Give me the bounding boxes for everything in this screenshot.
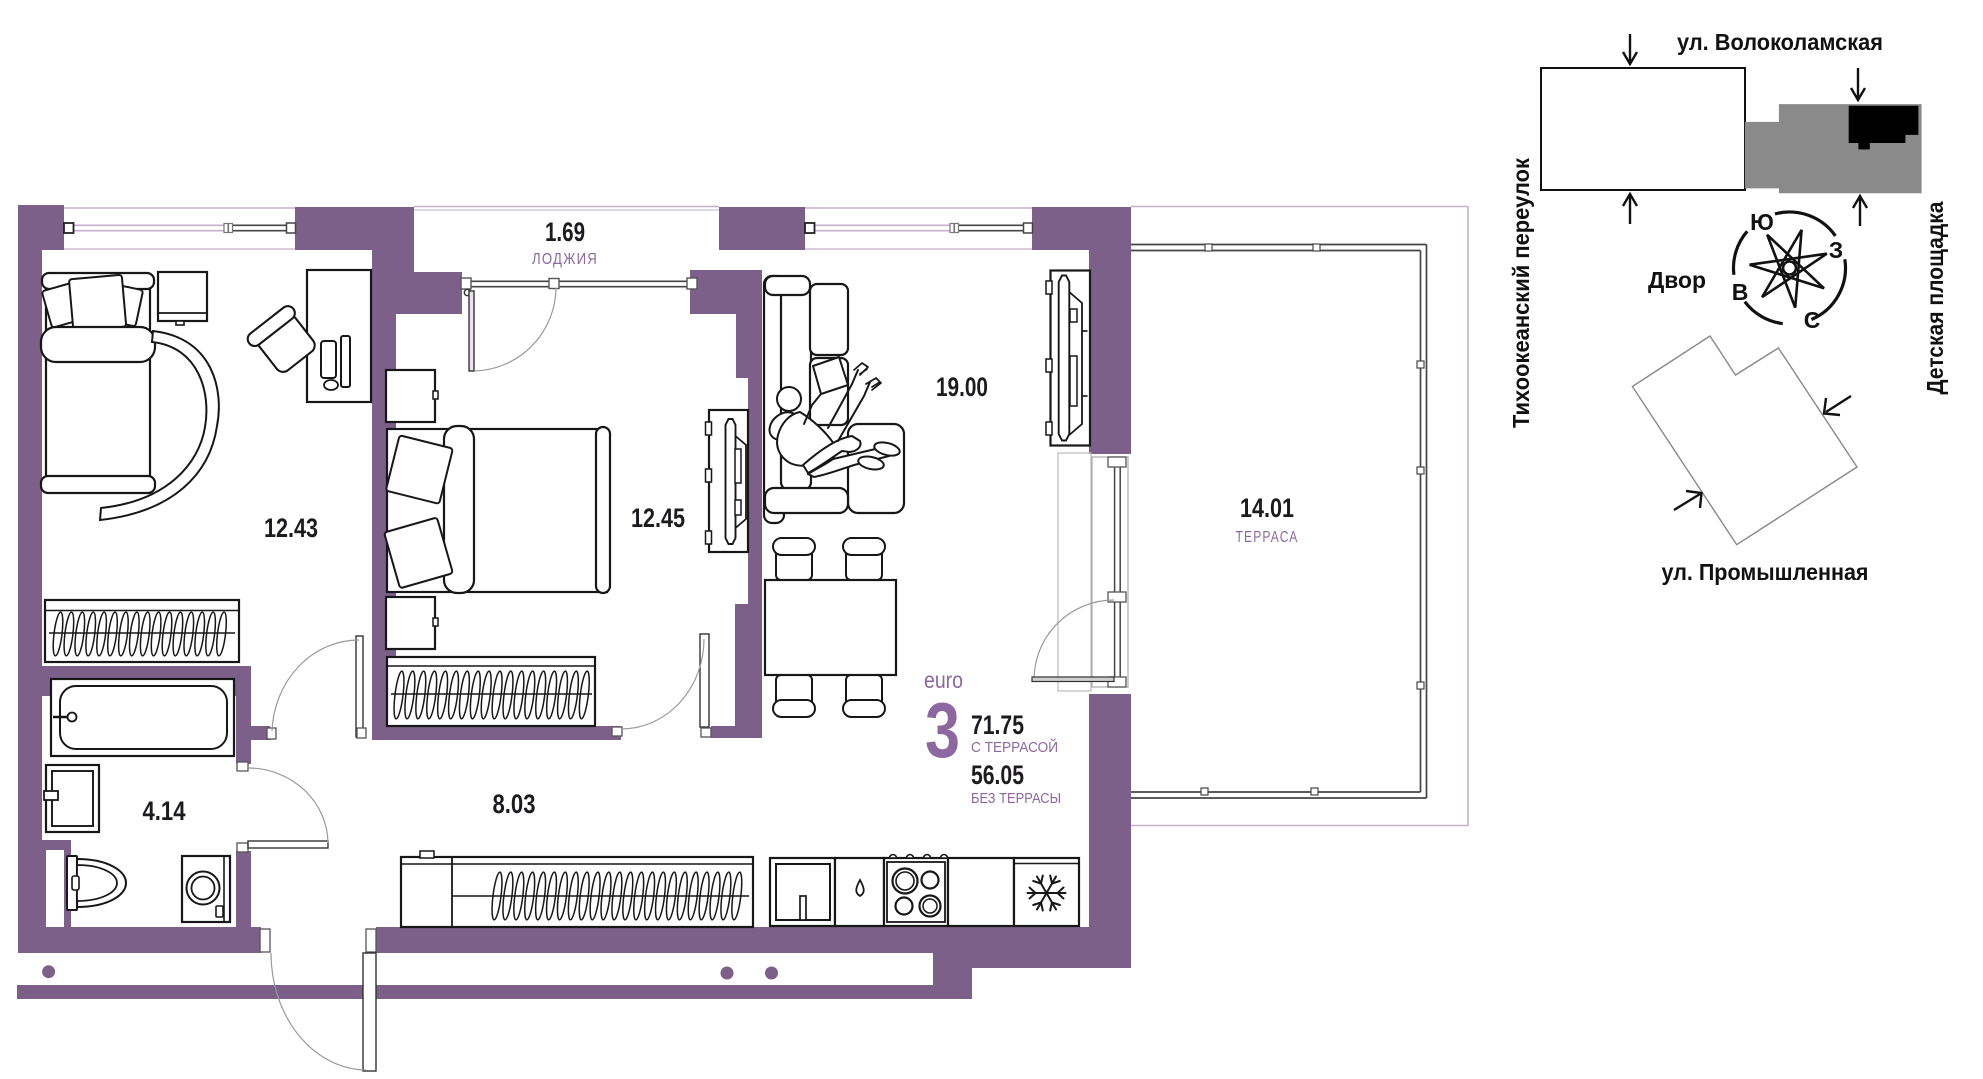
svg-text:ул. Промышленная: ул. Промышленная [1662, 559, 1869, 585]
svg-text:4.14: 4.14 [143, 796, 186, 826]
svg-text:ул. Волоколамская: ул. Волоколамская [1677, 29, 1883, 55]
svg-text:12.43: 12.43 [264, 513, 318, 543]
svg-text:С: С [1804, 307, 1821, 333]
svg-text:3: 3 [925, 686, 960, 774]
svg-text:19.00: 19.00 [936, 372, 988, 402]
svg-text:ТЕРРАСА: ТЕРРАСА [1236, 529, 1299, 546]
svg-text:Ю: Ю [1750, 209, 1774, 235]
svg-text:В: В [1732, 279, 1749, 305]
svg-text:14.01: 14.01 [1240, 493, 1294, 523]
svg-text:1.69: 1.69 [545, 217, 585, 247]
svg-text:Тихоокеанский переулок: Тихоокеанский переулок [1508, 158, 1534, 428]
svg-text:ЛОДЖИЯ: ЛОДЖИЯ [532, 251, 598, 268]
svg-text:БЕЗ ТЕРРАСЫ: БЕЗ ТЕРРАСЫ [971, 790, 1061, 807]
svg-text:Двор: Двор [1648, 267, 1706, 293]
svg-text:8.03: 8.03 [493, 789, 536, 819]
svg-text:71.75: 71.75 [971, 710, 1024, 740]
svg-text:Детская площадка: Детская площадка [1922, 201, 1948, 394]
svg-text:56.05: 56.05 [971, 760, 1024, 790]
svg-text:З: З [1829, 237, 1843, 263]
svg-text:С ТЕРРАСОЙ: С ТЕРРАСОЙ [971, 738, 1058, 756]
svg-text:12.45: 12.45 [631, 503, 685, 533]
